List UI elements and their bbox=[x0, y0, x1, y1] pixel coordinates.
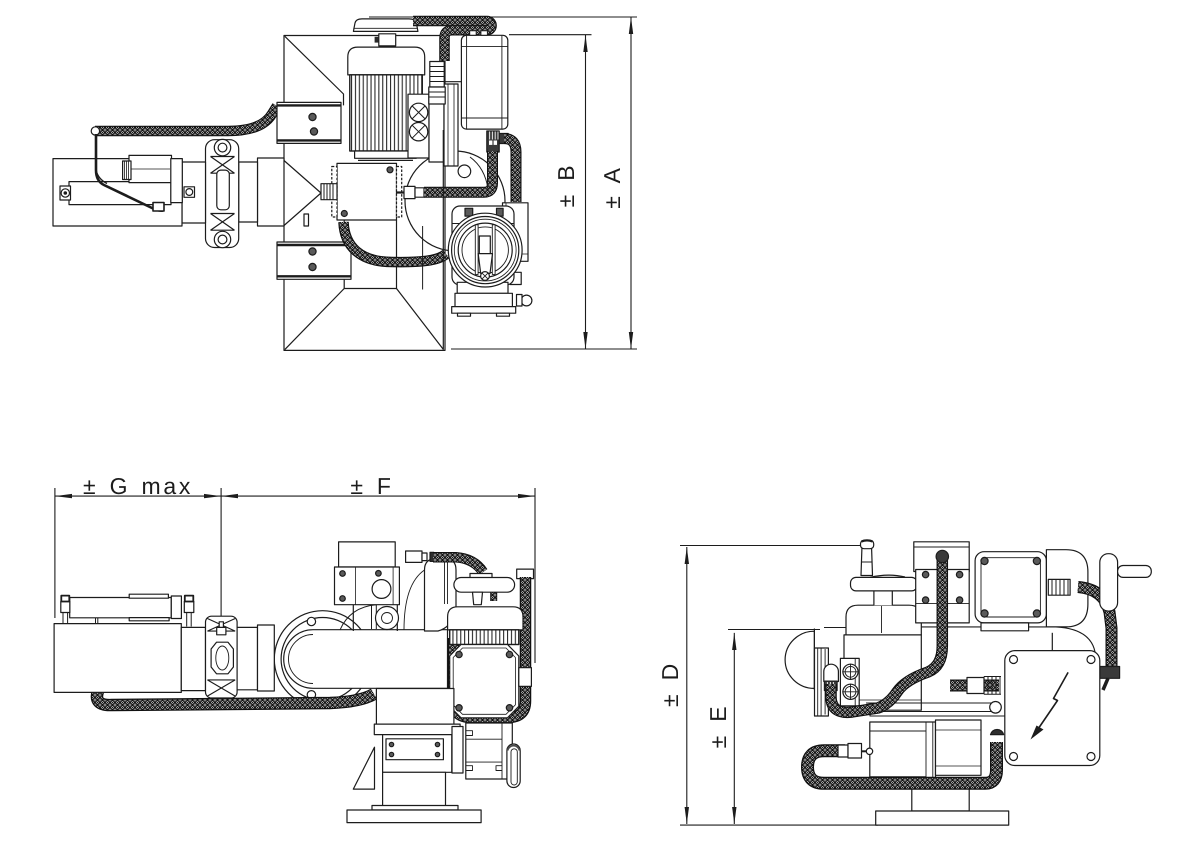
svg-text:± G max: ± G max bbox=[83, 473, 193, 499]
svg-text:± B: ± B bbox=[553, 163, 579, 208]
svg-text:± E: ± E bbox=[705, 704, 731, 749]
svg-text:± D: ± D bbox=[657, 661, 683, 707]
svg-text:± A: ± A bbox=[599, 165, 625, 208]
svg-text:± F: ± F bbox=[350, 473, 393, 499]
